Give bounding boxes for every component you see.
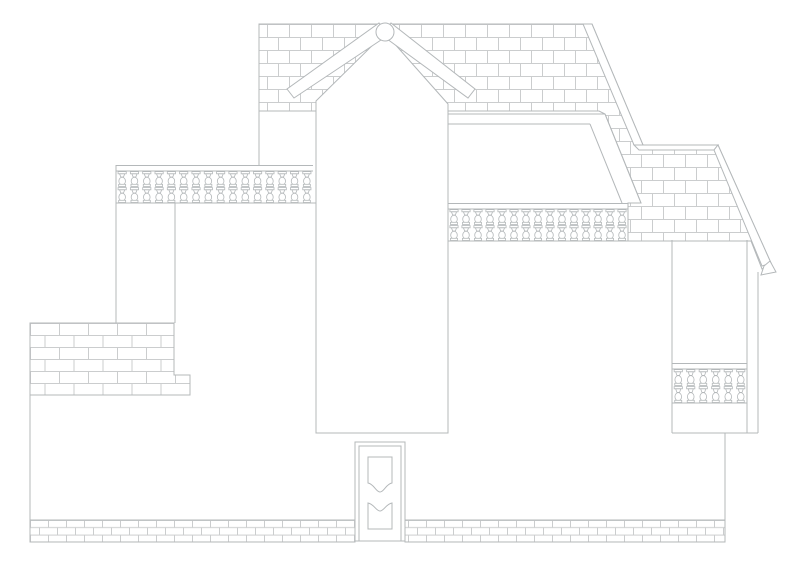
balustrade-right [672, 364, 747, 404]
brick-terrace-left [30, 323, 190, 395]
central-tower [316, 33, 448, 433]
house-elevation-svg [0, 0, 800, 575]
entry-door [355, 442, 405, 541]
roof-edge-trim-step [634, 145, 718, 150]
balustrade-middle [448, 204, 628, 242]
elevation-drawing-canvas[interactable] [0, 0, 800, 575]
gable-finial-circle [376, 23, 394, 41]
balustrade-left [116, 166, 313, 204]
